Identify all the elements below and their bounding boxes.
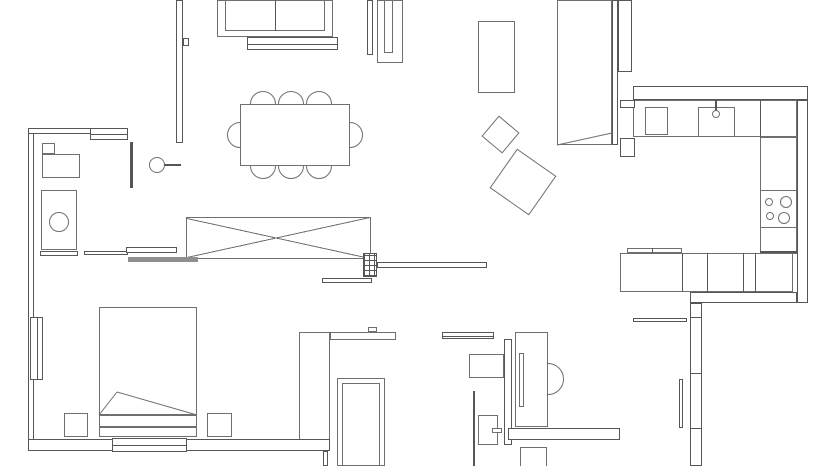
- vanity-slot: [519, 353, 524, 407]
- right-exterior-wall: [797, 100, 808, 303]
- wc-bottom-wall: [508, 428, 620, 440]
- divider-notch: [183, 38, 189, 46]
- kitchen-left-wall: [618, 0, 632, 72]
- bed: [99, 307, 197, 415]
- burner-4: [778, 212, 790, 224]
- balcony-door-leaf: [679, 379, 683, 428]
- corner-nook: [520, 447, 547, 466]
- hall-wall-bar: [377, 262, 487, 268]
- sliding-door-panel-a: [84, 251, 128, 255]
- cabinet-divider-3: [743, 253, 744, 292]
- tv-cabinet-slot: [384, 0, 393, 53]
- bathroom-fixture-stem: [164, 164, 181, 166]
- nightstand-right: [207, 413, 232, 437]
- balcony-wall-horizontal: [690, 292, 797, 303]
- cabinet-divider-4: [755, 253, 756, 292]
- cooktop: [760, 190, 797, 228]
- left-window: [30, 317, 43, 380]
- kitchen-top-wall: [633, 86, 808, 100]
- counter-end-line: [760, 251, 797, 253]
- bed-foot-a: [99, 415, 197, 427]
- balcony-wall-tick-3: [690, 428, 702, 429]
- balcony-wall-tick-1: [690, 317, 702, 318]
- bathroom-fixture: [149, 157, 165, 173]
- structural-column: [363, 253, 377, 277]
- wc-sink: [469, 354, 504, 378]
- bottom-window: [112, 438, 187, 452]
- burner-3: [766, 212, 774, 220]
- kitchen-cabinet: [645, 107, 668, 135]
- wc-left-wall: [473, 391, 475, 466]
- entry-rug: [478, 21, 515, 93]
- wardrobe-crossed: [186, 217, 371, 259]
- washing-machine-drum: [49, 212, 69, 232]
- bottom-step-wall: [323, 451, 328, 466]
- cabinet-divider-2: [707, 253, 708, 292]
- bathroom-counter: [42, 154, 80, 178]
- hall-step: [322, 278, 372, 283]
- entry-door-leaf: [557, 0, 612, 145]
- sofa-seat-divider: [275, 0, 276, 31]
- kitchen-tap: [712, 110, 720, 118]
- sliding-door-panel-c: [128, 257, 198, 262]
- burner-1: [765, 198, 773, 206]
- pouf-small: [481, 115, 519, 153]
- balcony-wall-tick-2: [690, 373, 702, 374]
- cabinet-back-divider: [652, 248, 653, 253]
- bedroom-wardrobe: [299, 332, 330, 440]
- bedroom-desk-knob: [368, 327, 377, 332]
- bed-foot-b: [99, 427, 197, 437]
- counter-divider: [760, 100, 761, 137]
- towel-bar: [442, 332, 494, 339]
- floor-plan-canvas: [0, 0, 840, 466]
- top-window: [90, 128, 128, 140]
- left-exterior-wall: [28, 128, 34, 445]
- bathroom-cabinet: [42, 143, 55, 154]
- bathroom-partition: [130, 142, 133, 188]
- burner-2: [780, 196, 792, 208]
- dining-table: [240, 104, 350, 166]
- shower-inner: [342, 383, 380, 466]
- cabinet-back-bar: [627, 248, 682, 253]
- nightstand-left: [64, 413, 88, 437]
- pouf-large: [490, 149, 557, 216]
- bathroom-bench: [40, 251, 78, 256]
- balcony-wall-vertical: [690, 303, 702, 466]
- sliding-door-panel-b: [126, 247, 177, 253]
- balcony-rail: [633, 318, 687, 322]
- cabinet-divider-1: [682, 253, 683, 292]
- tv-rail: [367, 0, 373, 55]
- kitchen-entry-block-b: [620, 138, 635, 157]
- sofa-console: [247, 37, 338, 50]
- bedroom-desk: [330, 332, 396, 340]
- living-divider-wall: [176, 0, 183, 143]
- kitchen-entry-block-a: [620, 100, 635, 108]
- toilet-flush: [492, 428, 502, 433]
